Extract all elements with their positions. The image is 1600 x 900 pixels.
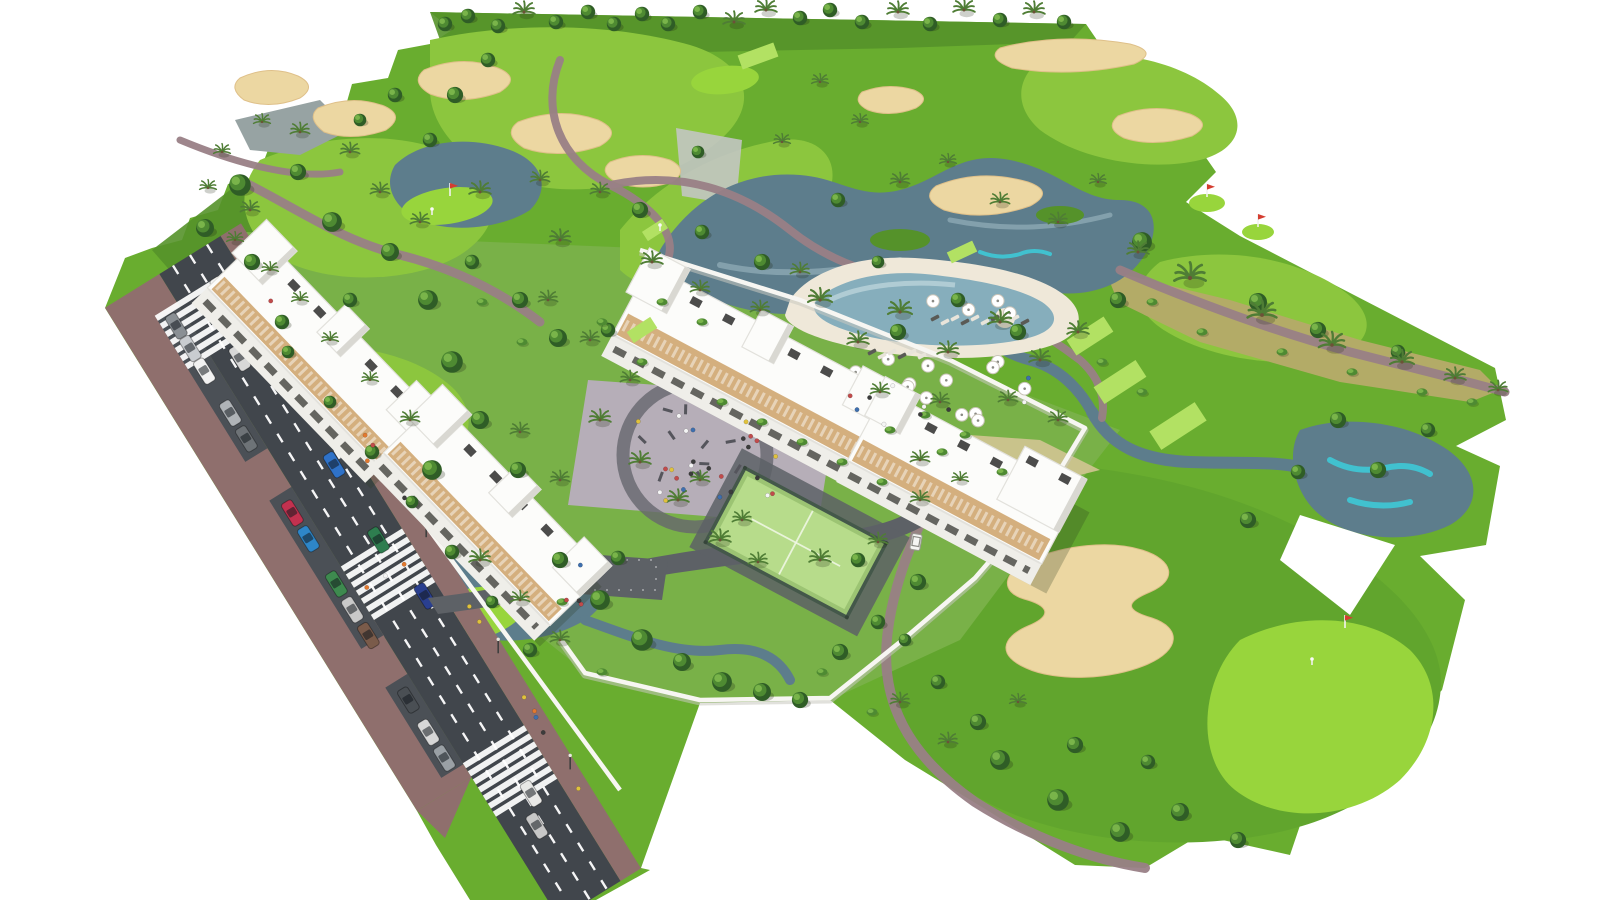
person [363, 433, 367, 437]
person [707, 466, 711, 470]
person [946, 407, 950, 411]
person [770, 491, 774, 495]
person [729, 490, 733, 494]
pool-umbrella [922, 360, 935, 373]
pool-umbrella [955, 408, 968, 421]
person [691, 428, 695, 432]
horizon-palm [953, 0, 975, 17]
pool-umbrella [1018, 382, 1031, 395]
person [576, 786, 580, 790]
horizon-tree [823, 3, 840, 17]
person [383, 574, 387, 578]
person [689, 472, 693, 476]
horizon-tree [461, 9, 478, 23]
palm-tree [200, 180, 217, 194]
person [848, 394, 852, 398]
person [541, 730, 545, 734]
person [534, 715, 538, 719]
pool-umbrella [972, 414, 985, 427]
golf-cart [910, 533, 923, 550]
person [371, 443, 375, 447]
person [674, 476, 678, 480]
horizon-tree [1057, 15, 1074, 29]
person [1026, 376, 1030, 380]
person [663, 467, 667, 471]
person [922, 405, 926, 409]
person [741, 436, 745, 440]
person [773, 454, 777, 458]
green-big-right [1207, 620, 1433, 813]
person [755, 476, 759, 480]
horizon-palm [1023, 1, 1045, 19]
person [402, 496, 406, 500]
person [681, 487, 685, 491]
horizon-tree [855, 15, 872, 29]
person [918, 412, 922, 416]
person [867, 395, 871, 399]
pool-umbrella [987, 361, 1000, 374]
person [578, 563, 582, 567]
aerial-render-stage [0, 0, 1600, 900]
play-equipment [684, 404, 687, 414]
person [891, 384, 895, 388]
golf-cart [910, 533, 923, 550]
person [658, 490, 662, 494]
person [636, 419, 640, 423]
person [684, 429, 688, 433]
person [577, 598, 581, 602]
pool-umbrella [920, 392, 933, 405]
horizon-tree [581, 5, 598, 19]
person [477, 620, 481, 624]
person [365, 585, 369, 589]
person [663, 498, 667, 502]
person [718, 495, 722, 499]
person [689, 463, 693, 467]
horizon-tree [923, 17, 940, 31]
person [748, 434, 752, 438]
horizon-palm [755, 0, 777, 17]
pool-umbrella [927, 295, 940, 308]
person [365, 459, 369, 463]
horizon-palm [887, 1, 909, 19]
person [532, 709, 536, 713]
person [677, 414, 681, 418]
horizon-tree [693, 5, 710, 19]
person [269, 299, 273, 303]
lake-islet-1 [870, 229, 930, 251]
person [522, 695, 526, 699]
person [1022, 400, 1026, 404]
pool-umbrella [991, 295, 1004, 308]
person [402, 562, 406, 566]
person [669, 468, 673, 472]
person [855, 407, 859, 411]
horizon-tree [993, 13, 1010, 27]
horizon-tree [793, 11, 810, 25]
person [882, 422, 886, 426]
person [755, 439, 759, 443]
person [719, 474, 723, 478]
person [765, 493, 769, 497]
person [564, 598, 568, 602]
play-equipment [699, 462, 709, 465]
horizon-tree [635, 7, 652, 21]
scene-svg [0, 0, 1600, 900]
pool-umbrella [940, 374, 953, 387]
person [467, 604, 471, 608]
person [746, 445, 750, 449]
person [744, 420, 748, 424]
